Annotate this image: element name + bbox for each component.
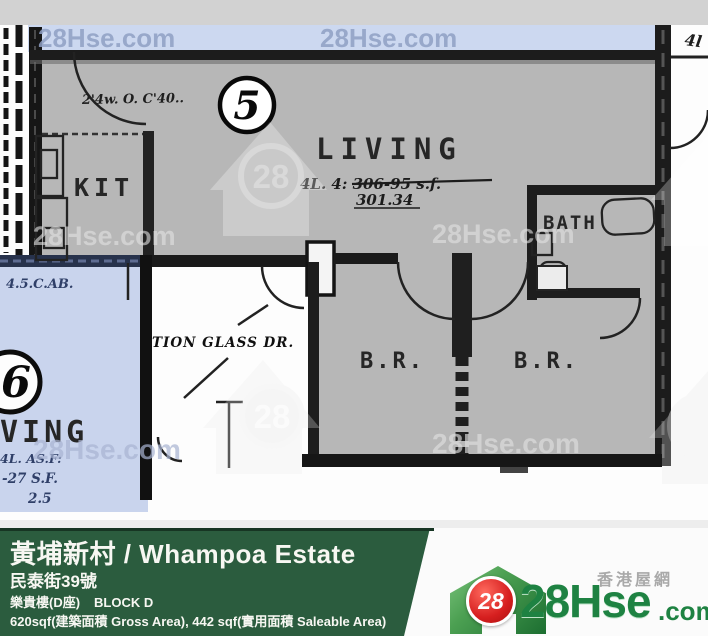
kitchen-label: KIT xyxy=(74,173,134,202)
unit6-note3: -27 S.F. xyxy=(2,471,58,487)
living-area-corrected: 301.34 xyxy=(356,191,413,209)
logo-brand-tld: .com xyxy=(658,596,708,627)
glass-door-note: TION GLASS DR. xyxy=(152,335,294,351)
watermark-text: 28Hse.com xyxy=(432,428,580,459)
estate-address: 民泰街39號 xyxy=(10,567,97,592)
top-gray-strip xyxy=(0,0,708,25)
unit6-badge: 6 xyxy=(0,352,40,412)
door-note: 2'4w. O. C'40.. xyxy=(81,91,184,108)
block-english: BLOCK D xyxy=(94,595,153,610)
watermark-text: 28Hse.com xyxy=(320,23,457,53)
logo-28-badge: 28 xyxy=(466,576,516,626)
28hse-logo[interactable]: 香港屋網 28 28Hse .com xyxy=(440,540,708,636)
logo-28-number: 28 xyxy=(478,588,504,615)
bath-closet xyxy=(537,266,567,290)
right-margin-note: 4l xyxy=(683,30,703,51)
unit6-note1: 4.5.C.AB. xyxy=(6,277,73,292)
unit5-number: 5 xyxy=(233,83,260,129)
watermark-text: 28Hse.com xyxy=(33,221,176,251)
unit6-number: 6 xyxy=(1,358,31,408)
watermark-badge-number: 28 xyxy=(254,398,291,435)
unit6-note4: 2.5 xyxy=(27,491,52,507)
estate-area: 620sqf(建築面積 Gross Area), 442 sqf(實用面積 Sa… xyxy=(10,611,386,630)
estate-title: 黃埔新村 / Whampoa Estate xyxy=(10,534,356,571)
estate-block: 樂貴樓(D座)BLOCK D xyxy=(10,592,153,611)
property-info-bar: 黃埔新村 / Whampoa Estate 民泰街39號 樂貴樓(D座)BLOC… xyxy=(0,520,708,636)
banner-top-line xyxy=(0,528,434,531)
living-label: LIVING xyxy=(316,132,463,166)
floorplan-page: 5 6 LIVING KIT BATH B.R. B.R. VING 2'4w.… xyxy=(0,0,708,636)
block-chinese: 樂貴樓(D座) xyxy=(10,595,80,610)
bedroom1-label: B.R. xyxy=(360,349,425,374)
footer-gap xyxy=(0,520,708,528)
watermark-text: 28Hse.com xyxy=(38,23,175,53)
floorplan-image: 5 6 LIVING KIT BATH B.R. B.R. VING 2'4w.… xyxy=(0,0,708,520)
logo-brand-name: 28Hse xyxy=(520,574,651,628)
unit5-badge: 5 xyxy=(220,78,274,132)
bedroom2-label: B.R. xyxy=(514,349,579,374)
watermark-text: 28Hse.com xyxy=(33,434,181,465)
watermark-text: 28Hse.com xyxy=(432,219,575,249)
watermark-badge-number: 28 xyxy=(253,158,290,195)
